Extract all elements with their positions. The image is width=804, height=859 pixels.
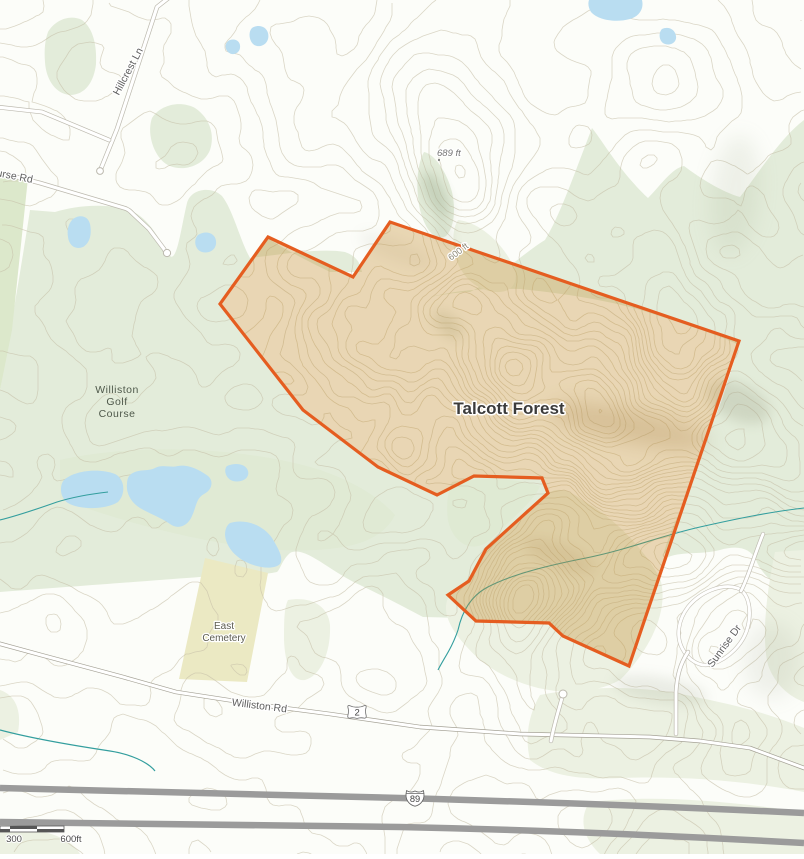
svg-text:300: 300 [6, 834, 22, 845]
svg-text:Talcott Forest: Talcott Forest [453, 399, 564, 418]
svg-text:Course: Course [99, 408, 136, 420]
svg-text:East: East [214, 621, 234, 632]
svg-text:89: 89 [410, 794, 420, 804]
svg-text:Williston: Williston [95, 384, 139, 396]
svg-text:689 ft: 689 ft [437, 148, 461, 159]
svg-text:Golf: Golf [106, 396, 127, 408]
svg-text:600ft: 600ft [60, 834, 81, 845]
svg-text:Cemetery: Cemetery [202, 633, 245, 644]
svg-text:2: 2 [355, 708, 360, 719]
